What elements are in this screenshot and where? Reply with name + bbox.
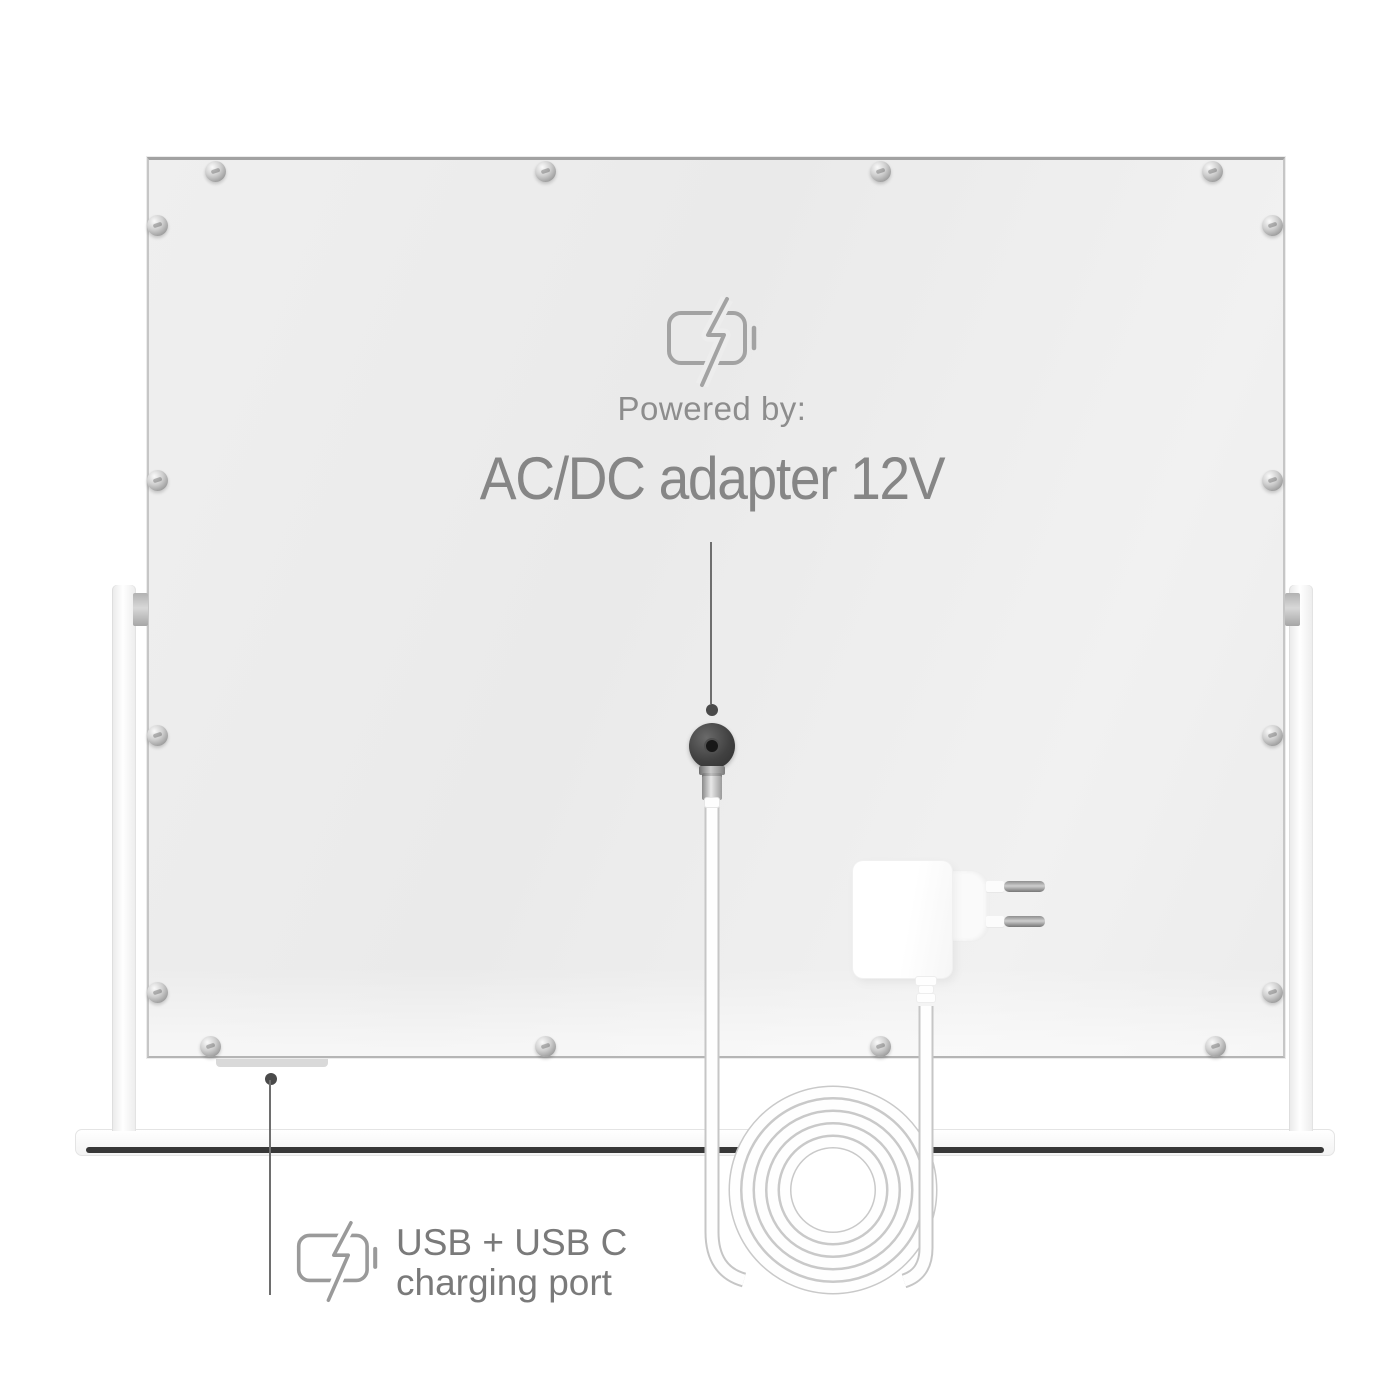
usb-port-label: USB + USB C charging port <box>396 1223 627 1303</box>
ac-dc-adapter <box>853 861 952 978</box>
stand-post-left <box>112 585 136 1131</box>
dc-power-port-hole <box>704 738 720 754</box>
stand-hinge-right <box>1285 593 1300 626</box>
usb-charging-port <box>216 1059 328 1067</box>
panel-screw <box>535 161 556 182</box>
panel-screw <box>147 215 168 236</box>
usb-port-label-line2: charging port <box>396 1263 627 1303</box>
powered-by-text: Powered by: <box>462 390 962 428</box>
adapter-strain-relief <box>916 993 936 1003</box>
panel-screw <box>205 161 226 182</box>
panel-screw <box>1262 982 1283 1003</box>
panel-screw <box>870 1036 891 1057</box>
dc-plug-collar <box>705 798 719 807</box>
panel-screw <box>870 161 891 182</box>
power-cable-coil <box>600 780 1060 1325</box>
power-leader-dot <box>706 704 718 716</box>
adapter-prong <box>1004 881 1045 892</box>
panel-screw <box>1262 215 1283 236</box>
adapter-name-text: AC/DC adapter 12V <box>390 444 1034 513</box>
panel-screw <box>147 470 168 491</box>
adapter-prong-base <box>986 916 1004 927</box>
panel-screw <box>200 1036 221 1057</box>
power-leader-line <box>710 542 712 704</box>
usb-leader-line <box>269 1080 271 1295</box>
panel-screw <box>535 1036 556 1057</box>
panel-screw <box>147 725 168 746</box>
panel-screw <box>1205 1036 1226 1057</box>
battery-charging-icon <box>296 1220 395 1303</box>
dc-plug-barrel <box>702 773 722 800</box>
panel-screw <box>1262 725 1283 746</box>
adapter-prong-base <box>986 881 1004 892</box>
usb-port-label-line1: USB + USB C <box>396 1223 627 1263</box>
panel-screw <box>1202 161 1223 182</box>
panel-screw <box>147 982 168 1003</box>
stand-hinge-left <box>133 593 148 626</box>
panel-screw <box>1262 470 1283 491</box>
adapter-prong <box>1004 916 1045 927</box>
battery-charging-icon <box>666 296 776 388</box>
usb-leader-dot <box>265 1073 277 1085</box>
stand-post-right <box>1289 585 1313 1131</box>
product-image-mirror-back: Powered by: AC/DC adapter 12V USB + USB … <box>0 0 1400 1400</box>
